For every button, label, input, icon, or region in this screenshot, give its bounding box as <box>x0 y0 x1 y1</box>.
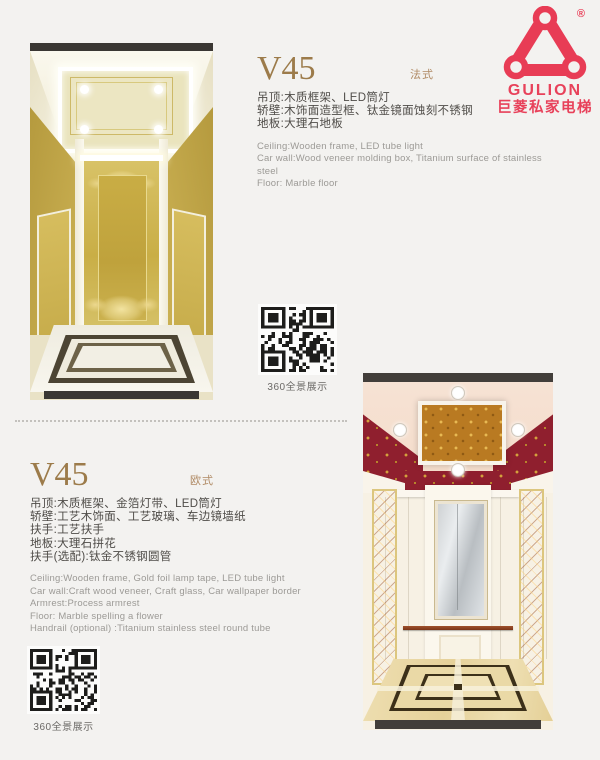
downlight <box>80 85 89 94</box>
spec-line: 扶手:工艺扶手 <box>30 524 350 537</box>
spec-line: 吊顶:木质框架、金箔灯带、LED筒灯 <box>30 498 350 511</box>
spec-line: Floor: Marble spelling a flower <box>30 611 350 624</box>
spec-line: 地板:大理石地板 <box>257 118 562 131</box>
photo-top-bar <box>30 43 213 51</box>
gold-back-wall <box>84 161 159 333</box>
qr-label: 360全景展示 <box>258 378 337 393</box>
spec-line: 轿壁:工艺木饰面、工艺玻璃、车边镜墙纸 <box>30 511 350 524</box>
handrail <box>403 626 513 630</box>
registered-trademark-symbol: ® <box>577 8 585 20</box>
downlight <box>80 125 89 134</box>
specs-english: Ceiling:Wooden frame, Gold foil lamp tap… <box>30 573 350 636</box>
spec-line: Car wall:Craft wood veneer, Craft glass,… <box>30 586 350 599</box>
spec-line: 扶手(选配):钛金不锈钢圆管 <box>30 551 350 564</box>
style-tag-french: 法式 <box>410 66 434 82</box>
french-section-info: V45 法式 吊顶:木质框架、LED筒灯 轿壁:木饰面造型框、钛金镜面蚀刻不锈钢… <box>257 52 562 191</box>
european-elevator-photo <box>363 373 553 730</box>
model-title: V45 <box>30 456 89 493</box>
qr-code-european-360 <box>27 646 100 714</box>
spec-line: Car wall:Wood veneer molding box, Titani… <box>257 153 562 178</box>
downlight <box>451 386 465 400</box>
spec-line: Ceiling:Wooden frame, LED tube light <box>257 141 562 154</box>
downlight <box>393 423 407 437</box>
specs-chinese: 吊顶:木质框架、LED筒灯 轿壁:木饰面造型框、钛金镜面蚀刻不锈钢 地板:大理石… <box>257 92 562 132</box>
spec-line: 轿壁:木饰面造型框、钛金镜面蚀刻不锈钢 <box>257 105 562 118</box>
catalog-page: ® GULION 巨菱私家电梯 V45 法 <box>0 0 600 760</box>
gold-ceiling-panel <box>418 401 506 465</box>
specs-chinese: 吊顶:木质框架、金箔灯带、LED筒灯 轿壁:工艺木饰面、工艺玻璃、车边镜墙纸 扶… <box>30 498 350 564</box>
floor-sill <box>44 391 199 399</box>
photo-top-bar <box>363 373 553 382</box>
spec-line: Ceiling:Wooden frame, Gold foil lamp tap… <box>30 573 350 586</box>
downlight <box>511 423 525 437</box>
spec-line: Handrail (optional) :Titanium stainless … <box>30 623 350 636</box>
downlight <box>451 463 465 477</box>
model-title: V45 <box>257 50 316 87</box>
downlight <box>154 85 163 94</box>
spec-line: 吊顶:木质框架、LED筒灯 <box>257 92 562 105</box>
european-section-info: V45 欧式 吊顶:木质框架、金箔灯带、LED筒灯 轿壁:工艺木饰面、工艺玻璃、… <box>30 458 350 636</box>
spec-line: Armrest:Process armrest <box>30 598 350 611</box>
style-tag-european: 欧式 <box>190 472 214 488</box>
mirror <box>435 501 487 619</box>
downlight <box>154 125 163 134</box>
spec-line: 地板:大理石拼花 <box>30 538 350 551</box>
specs-english: Ceiling:Wooden frame, LED tube light Car… <box>257 141 562 191</box>
qr-code-french-360 <box>258 304 337 375</box>
qr-label: 360全景展示 <box>17 718 110 733</box>
spec-line: Floor: Marble floor <box>257 178 562 191</box>
french-elevator-photo <box>30 43 213 400</box>
floor-sill <box>375 720 541 729</box>
wood-panel-left <box>372 489 397 685</box>
wood-panel-right <box>519 489 544 685</box>
dotted-divider <box>15 420 347 422</box>
